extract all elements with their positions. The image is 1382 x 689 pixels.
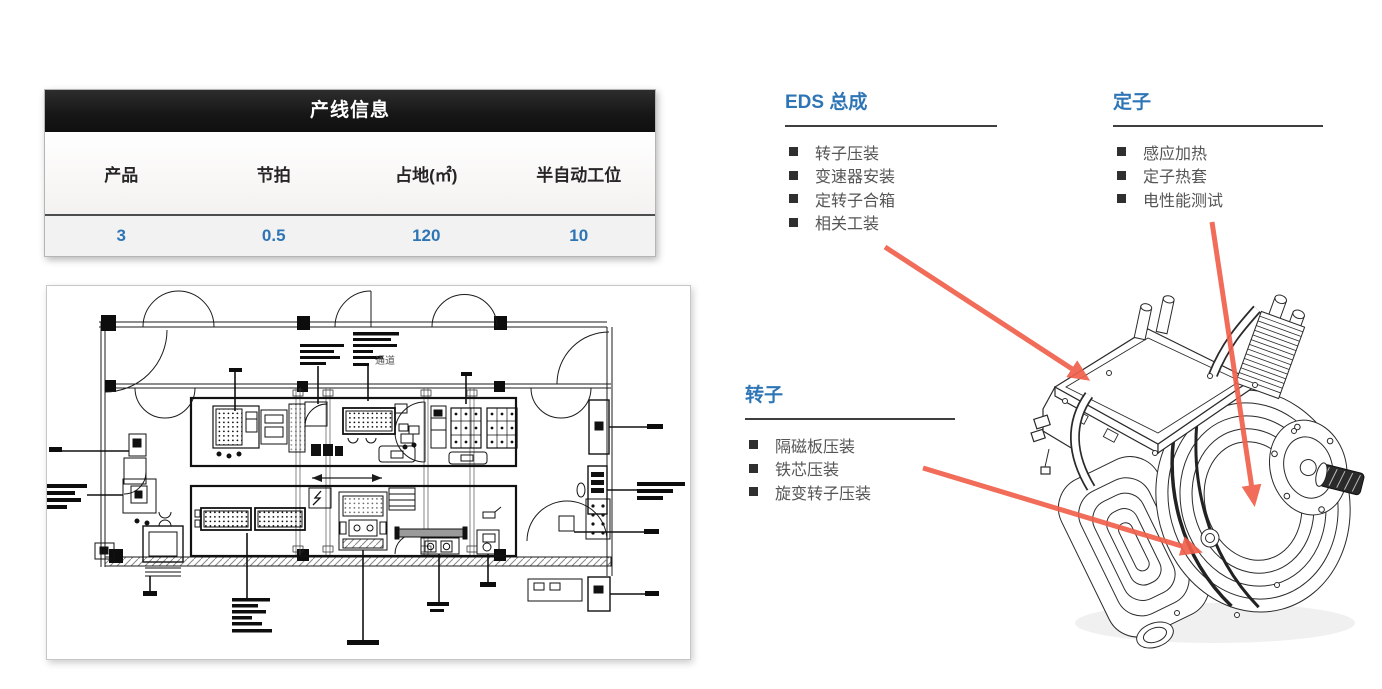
- section-rotor: 转子 隔磁板压装 铁芯压装 旋变转子压装: [745, 385, 955, 504]
- section-eds-assembly: EDS 总成 转子压装 变速器安装 定转子合箱 相关工装: [785, 92, 997, 234]
- list-item: 变速器安装: [789, 164, 997, 188]
- bullet-square-icon: [789, 147, 798, 156]
- section-list: 隔磁板压装 铁芯压装 旋变转子压装: [749, 433, 955, 504]
- left-side-rooms: [47, 434, 183, 596]
- aisle-flow-arrow-icon: [312, 474, 382, 482]
- bullet-square-icon: [749, 464, 758, 473]
- bullet-square-icon: [789, 171, 798, 180]
- section-rule: [1113, 125, 1323, 127]
- aisle-label: 通道: [375, 354, 395, 367]
- table-title: 产线信息: [45, 90, 655, 132]
- section-list: 感应加热 定子热套 电性能测试: [1117, 140, 1323, 211]
- section-list: 转子压装 变速器安装 定转子合箱 相关工装: [789, 140, 997, 234]
- list-item: 电性能测试: [1117, 187, 1323, 211]
- upper-line-zone: [191, 398, 517, 466]
- eds-unit-svg: [1005, 283, 1377, 663]
- bullet-square-icon: [749, 440, 758, 449]
- section-title: 定子: [1113, 92, 1323, 113]
- table-header-row: 产品 节拍 占地(㎡) 半自动工位: [45, 132, 655, 216]
- list-item-label: 隔磁板压装: [775, 433, 855, 457]
- list-item: 相关工装: [789, 211, 997, 235]
- list-item: 定子热套: [1117, 164, 1323, 188]
- list-item-label: 变速器安装: [815, 163, 895, 187]
- bullet-square-icon: [789, 218, 798, 227]
- section-stator: 定子 感应加热 定子热套 电性能测试: [1113, 92, 1323, 211]
- list-item: 感应加热: [1117, 140, 1323, 164]
- bullet-square-icon: [789, 194, 798, 203]
- list-item: 隔磁板压装: [749, 433, 955, 457]
- list-item: 铁芯压装: [749, 457, 955, 481]
- bullet-square-icon: [1117, 171, 1126, 180]
- value-area: 120: [350, 226, 503, 246]
- list-item: 定转子合箱: [789, 187, 997, 211]
- list-item-label: 转子压装: [815, 140, 879, 164]
- list-item-label: 铁芯压装: [775, 456, 839, 480]
- section-title: 转子: [745, 385, 955, 406]
- value-product: 3: [45, 226, 198, 246]
- list-item-label: 定转子合箱: [815, 187, 895, 211]
- section-title: EDS 总成: [785, 92, 997, 113]
- floor-plan-drawing: 通道: [47, 286, 690, 659]
- table-value-row: 3 0.5 120 10: [45, 216, 655, 256]
- column-header-takt: 节拍: [198, 161, 351, 186]
- eds-unit-drawing: [1005, 283, 1377, 668]
- corridor-label-bars: 通道: [229, 332, 472, 411]
- list-item-label: 旋变转子压装: [775, 480, 871, 504]
- bullet-square-icon: [749, 487, 758, 496]
- slide-canvas: 产线信息 产品 节拍 占地(㎡) 半自动工位 3 0.5 120 10: [0, 0, 1382, 689]
- section-rule: [745, 418, 955, 420]
- list-item-label: 电性能测试: [1143, 187, 1223, 211]
- oil-cooler: [1235, 291, 1312, 399]
- bullet-square-icon: [1117, 194, 1126, 203]
- list-item-label: 相关工装: [815, 210, 879, 234]
- column-header-area: 占地(㎡): [350, 161, 503, 186]
- value-semi-auto: 10: [503, 226, 656, 246]
- value-takt: 0.5: [198, 226, 351, 246]
- plan-walls: [99, 315, 612, 576]
- list-item: 旋变转子压装: [749, 480, 955, 504]
- list-item: 转子压装: [789, 140, 997, 164]
- list-item-label: 定子热套: [1143, 163, 1207, 187]
- production-line-table: 产线信息 产品 节拍 占地(㎡) 半自动工位 3 0.5 120 10: [44, 89, 656, 257]
- section-rule: [785, 125, 997, 127]
- column-header-semi-auto: 半自动工位: [503, 161, 656, 186]
- column-header-product: 产品: [45, 161, 198, 186]
- bullet-square-icon: [1117, 147, 1126, 156]
- list-item-label: 感应加热: [1143, 140, 1207, 164]
- floor-plan-panel: 通道: [46, 285, 691, 660]
- lower-line-zone: [191, 486, 516, 556]
